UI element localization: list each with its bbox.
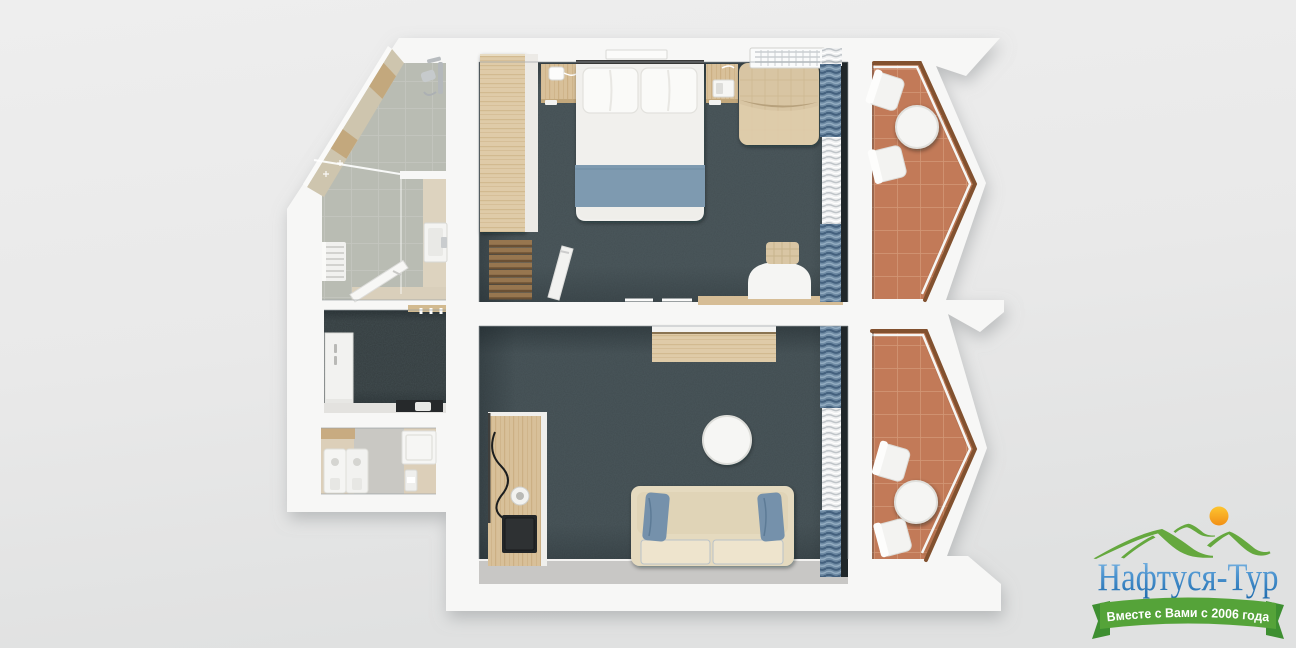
svg-text:Нафтуся-Тур: Нафтуся-Тур bbox=[1098, 556, 1279, 599]
